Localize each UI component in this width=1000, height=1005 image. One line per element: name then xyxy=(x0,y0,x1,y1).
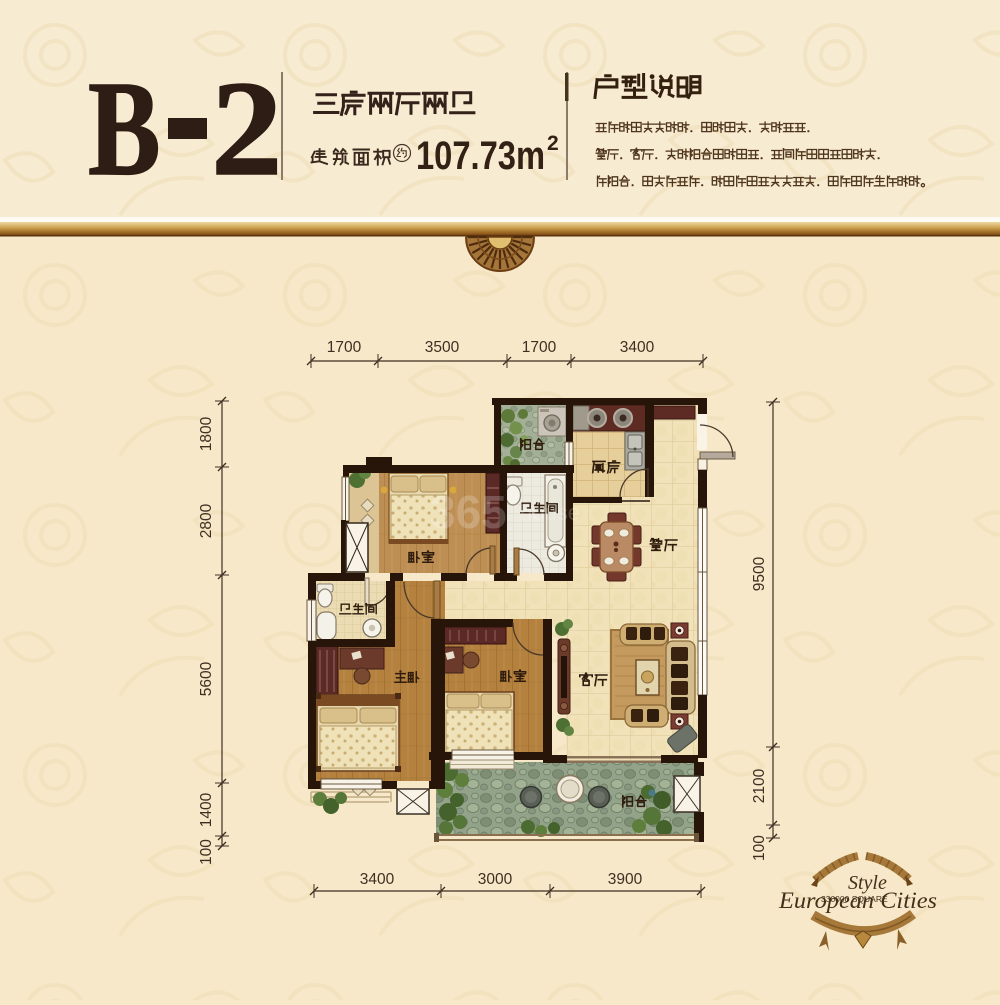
svg-text:365: 365 xyxy=(430,486,507,538)
svg-text:3000: 3000 xyxy=(478,871,513,888)
svg-text:2800: 2800 xyxy=(198,503,215,538)
svg-text:2: 2 xyxy=(211,54,282,204)
svg-text:100: 100 xyxy=(751,835,768,861)
svg-text:2: 2 xyxy=(547,132,559,155)
svg-text:107.73m: 107.73m xyxy=(416,134,545,178)
svg-text:European Cities: European Cities xyxy=(778,888,937,913)
svg-text:B: B xyxy=(88,53,161,204)
svg-text:9500: 9500 xyxy=(751,556,768,591)
svg-text:1400: 1400 xyxy=(198,792,215,827)
svg-text:3400: 3400 xyxy=(360,871,395,888)
svg-text:3400: 3400 xyxy=(620,339,655,356)
svg-text:5600: 5600 xyxy=(198,661,215,696)
svg-text:2100: 2100 xyxy=(751,768,768,803)
svg-text:1700: 1700 xyxy=(327,339,362,356)
svg-text:100: 100 xyxy=(198,839,215,865)
svg-text:1800: 1800 xyxy=(198,416,215,451)
svg-text:1700: 1700 xyxy=(522,339,557,356)
svg-text:3900: 3900 xyxy=(608,871,643,888)
svg-text:house: house xyxy=(520,500,580,525)
svg-text:3500: 3500 xyxy=(425,339,460,356)
